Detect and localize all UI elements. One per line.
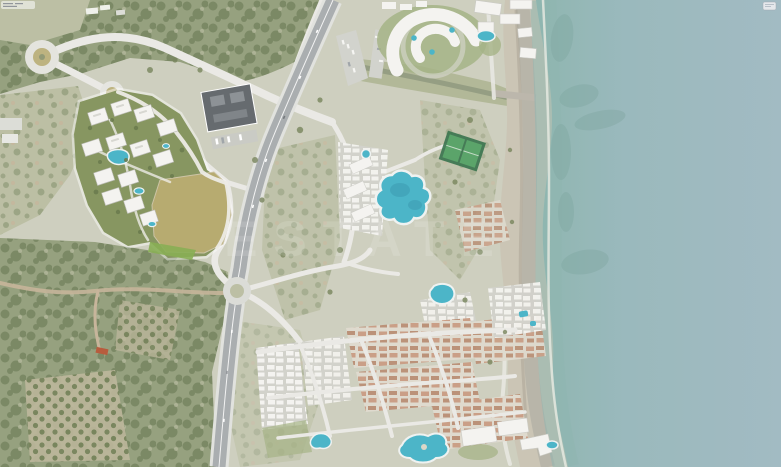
map-canvas: ESTATE	[0, 0, 781, 467]
haze-overlay	[0, 0, 781, 467]
satellite-map[interactable]: ESTATE	[0, 0, 781, 467]
